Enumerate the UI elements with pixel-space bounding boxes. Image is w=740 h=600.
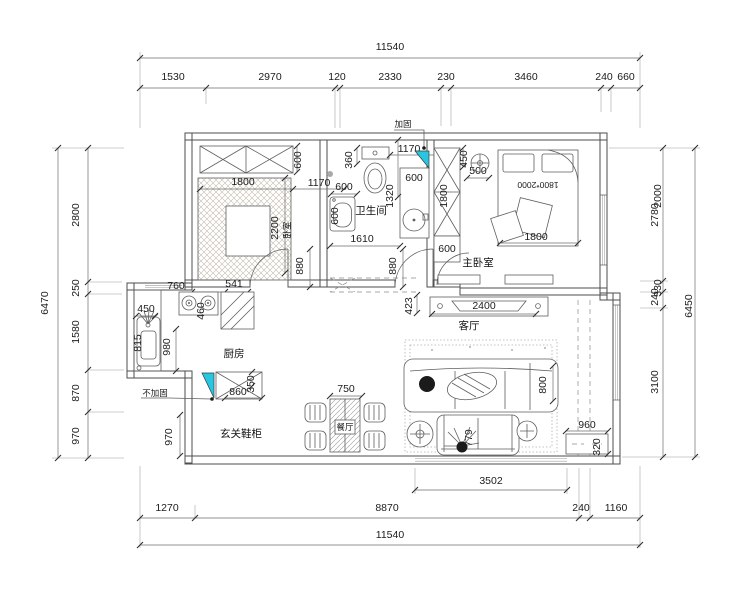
no-reinforce-triangle [202,373,214,398]
dim-bed2-541: 541 [225,278,243,290]
dim-bottom-2: 8870 [375,502,399,514]
dim-right-total: 6450 [683,294,695,318]
entry: 860 350 970 玄关鞋柜 不加固 [141,369,265,446]
dim-kit-815: 815 [132,334,144,352]
low-cabinet [438,275,480,284]
dim-bottom-1: 1270 [155,502,179,514]
dim-kit-450: 450 [137,303,155,315]
dim-right-2000: 2000 [652,184,664,208]
dim-top-1: 1530 [161,71,185,83]
dim-bath-door: 880 [387,257,399,275]
dim-right-330: 330 [652,279,664,297]
dim-living-sofa: 800 [537,376,549,394]
sofa-pillow [419,376,435,392]
room-living: 423 2400 客厅 800 779 [403,292,558,455]
bed-quilt [226,206,270,256]
dim-top-2: 2970 [258,71,282,83]
dim-bath-360: 360 [343,151,355,169]
dining-chair [305,431,326,450]
room-label-master: 主卧室 [462,256,494,269]
dim-entry-350: 350 [245,375,257,393]
window-balcony [613,305,620,400]
dim-kit-980: 980 [161,338,173,356]
side-table [407,421,433,447]
room-label-dining: 餐厅 [336,423,354,433]
room-label-living: 客厅 [459,319,480,332]
dimension-chain-top: 11540 1530 2970 120 2330 230 3460 240 66… [137,41,643,128]
dim-top-6: 3460 [514,71,538,83]
dim-top-3: 120 [328,71,346,83]
dim-master-bed-width: 1800 [524,231,548,243]
fridge [221,292,254,329]
dining-chair [305,403,326,422]
ceiling-fan-icon [471,154,489,172]
dim-dining-750: 750 [337,383,355,395]
room-label-kitchen: 厨房 [224,347,245,360]
side-table [517,421,537,441]
dim-hall-wardrobe-depth: 600 [438,243,456,255]
bed-size-label: 1800*2000 [517,180,558,190]
dim-left-1: 2800 [70,203,82,227]
dining-chair [364,431,385,450]
dim-bath-wash-d: 600 [329,207,341,225]
dim-bottom-3: 240 [572,502,590,514]
dim-bed2-width: 1800 [231,176,255,188]
reinforce-triangle [415,151,429,168]
dim-left-total: 6470 [39,291,51,315]
dim-top-4: 2330 [378,71,402,83]
dim-top-5: 230 [437,71,455,83]
low-cabinet [505,275,553,284]
balcony: 960 320 [563,419,611,457]
dim-bed2-1170: 1170 [308,177,331,189]
dim-bed2-door: 880 [294,257,306,275]
no-reinforce-leader [141,398,211,399]
dim-bed2-length: 2200 [269,216,281,240]
dim-entry-970: 970 [163,428,175,446]
pillow [542,154,573,172]
note-reinforce: 加固 [394,119,411,129]
dim-right-3100: 3100 [649,370,661,394]
window-master [600,195,607,265]
dim-bed2-760: 760 [167,280,185,292]
dim-balcony-960: 960 [578,419,596,431]
dim-left-4: 870 [70,384,82,402]
dim-hall-450: 450 [458,150,470,168]
room-label-bedroom2: 卧室 [282,221,293,239]
dining-chair [364,403,385,422]
dim-left-5: 970 [70,427,82,445]
dim-balcony-320: 320 [591,438,603,456]
room-label-bathroom: 卫生间 [355,204,387,217]
dim-left-3: 1580 [70,320,82,344]
floor-plan-canvas: 11540 1530 2970 120 2330 230 3460 240 66… [0,0,740,600]
dim-bath-width: 1610 [350,233,374,245]
dim-bath-vanity: 600 [405,172,423,184]
dim-left-2: 250 [70,279,82,297]
dim-top-8: 660 [617,71,635,83]
dim-bed2-ward-depth: 600 [292,151,304,169]
dim-bath-wash-w: 600 [335,181,353,193]
note-no-reinforce: 不加固 [142,388,168,398]
dim-bottom-total: 11540 [376,529,405,541]
dim-living-tv: 2400 [472,300,496,312]
room-dining: 750 餐厅 [305,383,385,452]
dimension-chain-left: 6470 2800 250 1580 870 970 [39,145,124,461]
window-living-south [415,459,567,462]
dim-living-423: 423 [403,297,415,315]
loveseat [437,415,519,455]
dim-top-total: 11540 [376,41,405,53]
floor-plan-drawing: 11540 1530 2970 120 2330 230 3460 240 66… [0,0,740,600]
dimension-chain-bottom: 3502 1270 8870 240 1160 11540 [137,466,643,548]
sofa [404,359,558,412]
pillow [503,154,534,172]
dim-bottom-4: 1160 [605,502,628,514]
dim-hall-wardrobe: 1800 [438,184,450,208]
dimension-chain-right: 6450 2780 2000 240 330 3100 [609,145,700,460]
dim-kit-460: 460 [195,302,207,320]
dim-top-7: 240 [595,71,613,83]
room-label-entry: 玄关鞋柜 [220,427,262,440]
dim-bottom-inner: 3502 [479,475,503,487]
wardrobe [200,146,293,173]
